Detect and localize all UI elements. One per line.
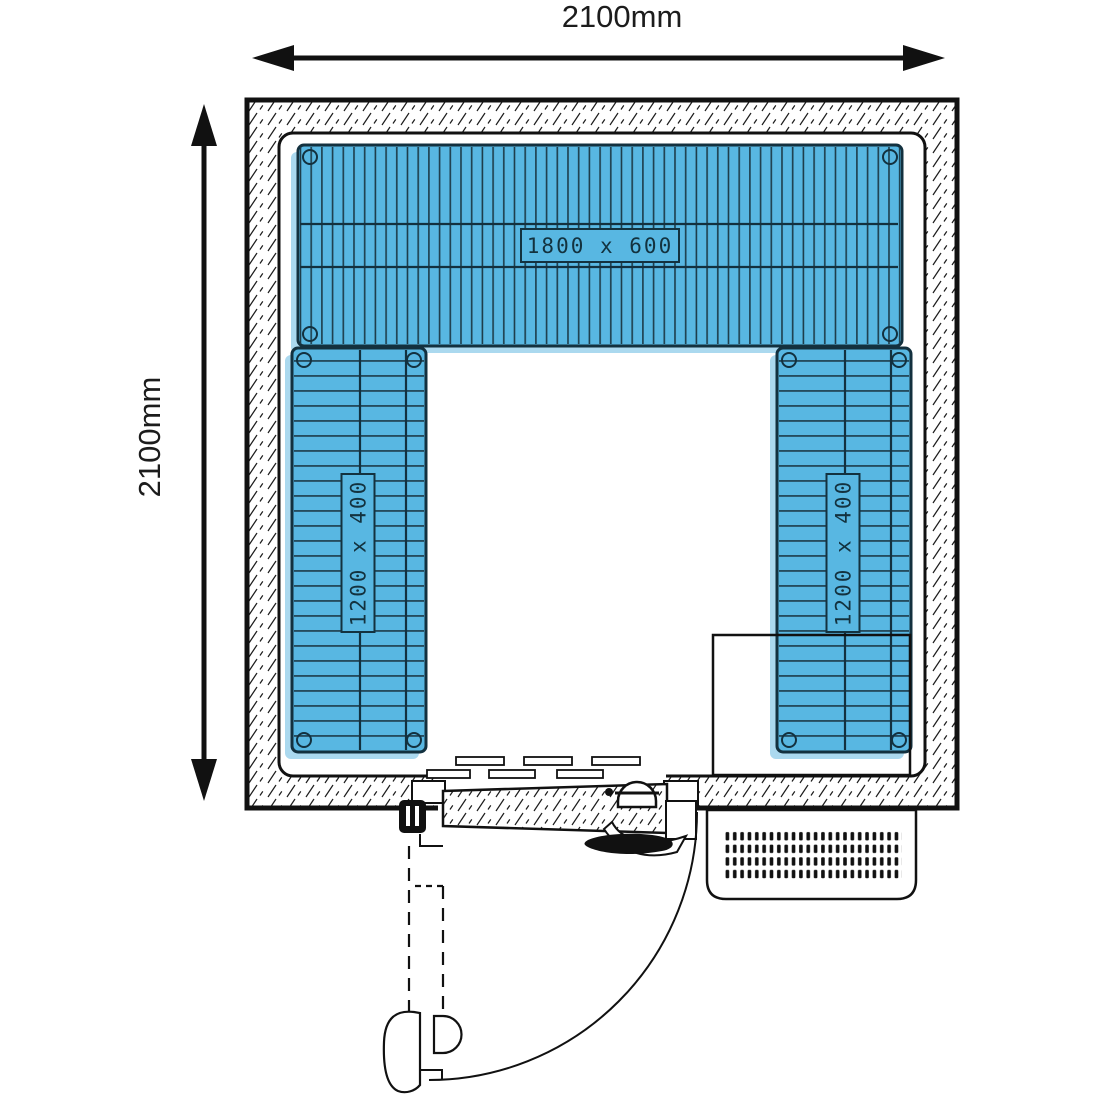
height-dimension-arrow bbox=[191, 104, 217, 801]
top-shelf-label: 1800 x 600 bbox=[521, 229, 679, 262]
right-shelf-label: 1200 x 400 bbox=[827, 474, 860, 632]
width-dimension-arrow bbox=[252, 45, 945, 71]
left-shelf: 1200 x 400 bbox=[285, 348, 426, 759]
floor-plan-diagram: 2100mm 2100mm 1800 x 600 bbox=[0, 0, 1100, 1100]
vent-grille-slots bbox=[724, 830, 902, 881]
left-shelf-label: 1200 x 400 bbox=[342, 474, 375, 632]
width-dimension-label: 2100mm bbox=[562, 0, 683, 34]
vent-grille bbox=[707, 810, 916, 899]
right-shelf-label-text: 1200 x 400 bbox=[832, 480, 856, 626]
height-dimension: 2100mm bbox=[132, 104, 217, 801]
door-hinge bbox=[399, 800, 426, 833]
door-jamb-left bbox=[412, 781, 445, 803]
height-dimension-label: 2100mm bbox=[132, 377, 167, 498]
door-latch-block bbox=[666, 801, 696, 839]
top-shelf: 1800 x 600 bbox=[291, 145, 902, 353]
floor-plan-svg: 2100mm 2100mm 1800 x 600 bbox=[0, 0, 1100, 1100]
left-shelf-label-text: 1200 x 400 bbox=[347, 480, 371, 626]
width-dimension: 2100mm bbox=[252, 0, 945, 71]
top-shelf-label-text: 1800 x 600 bbox=[527, 234, 673, 258]
right-shelf: 1200 x 400 bbox=[770, 348, 911, 759]
